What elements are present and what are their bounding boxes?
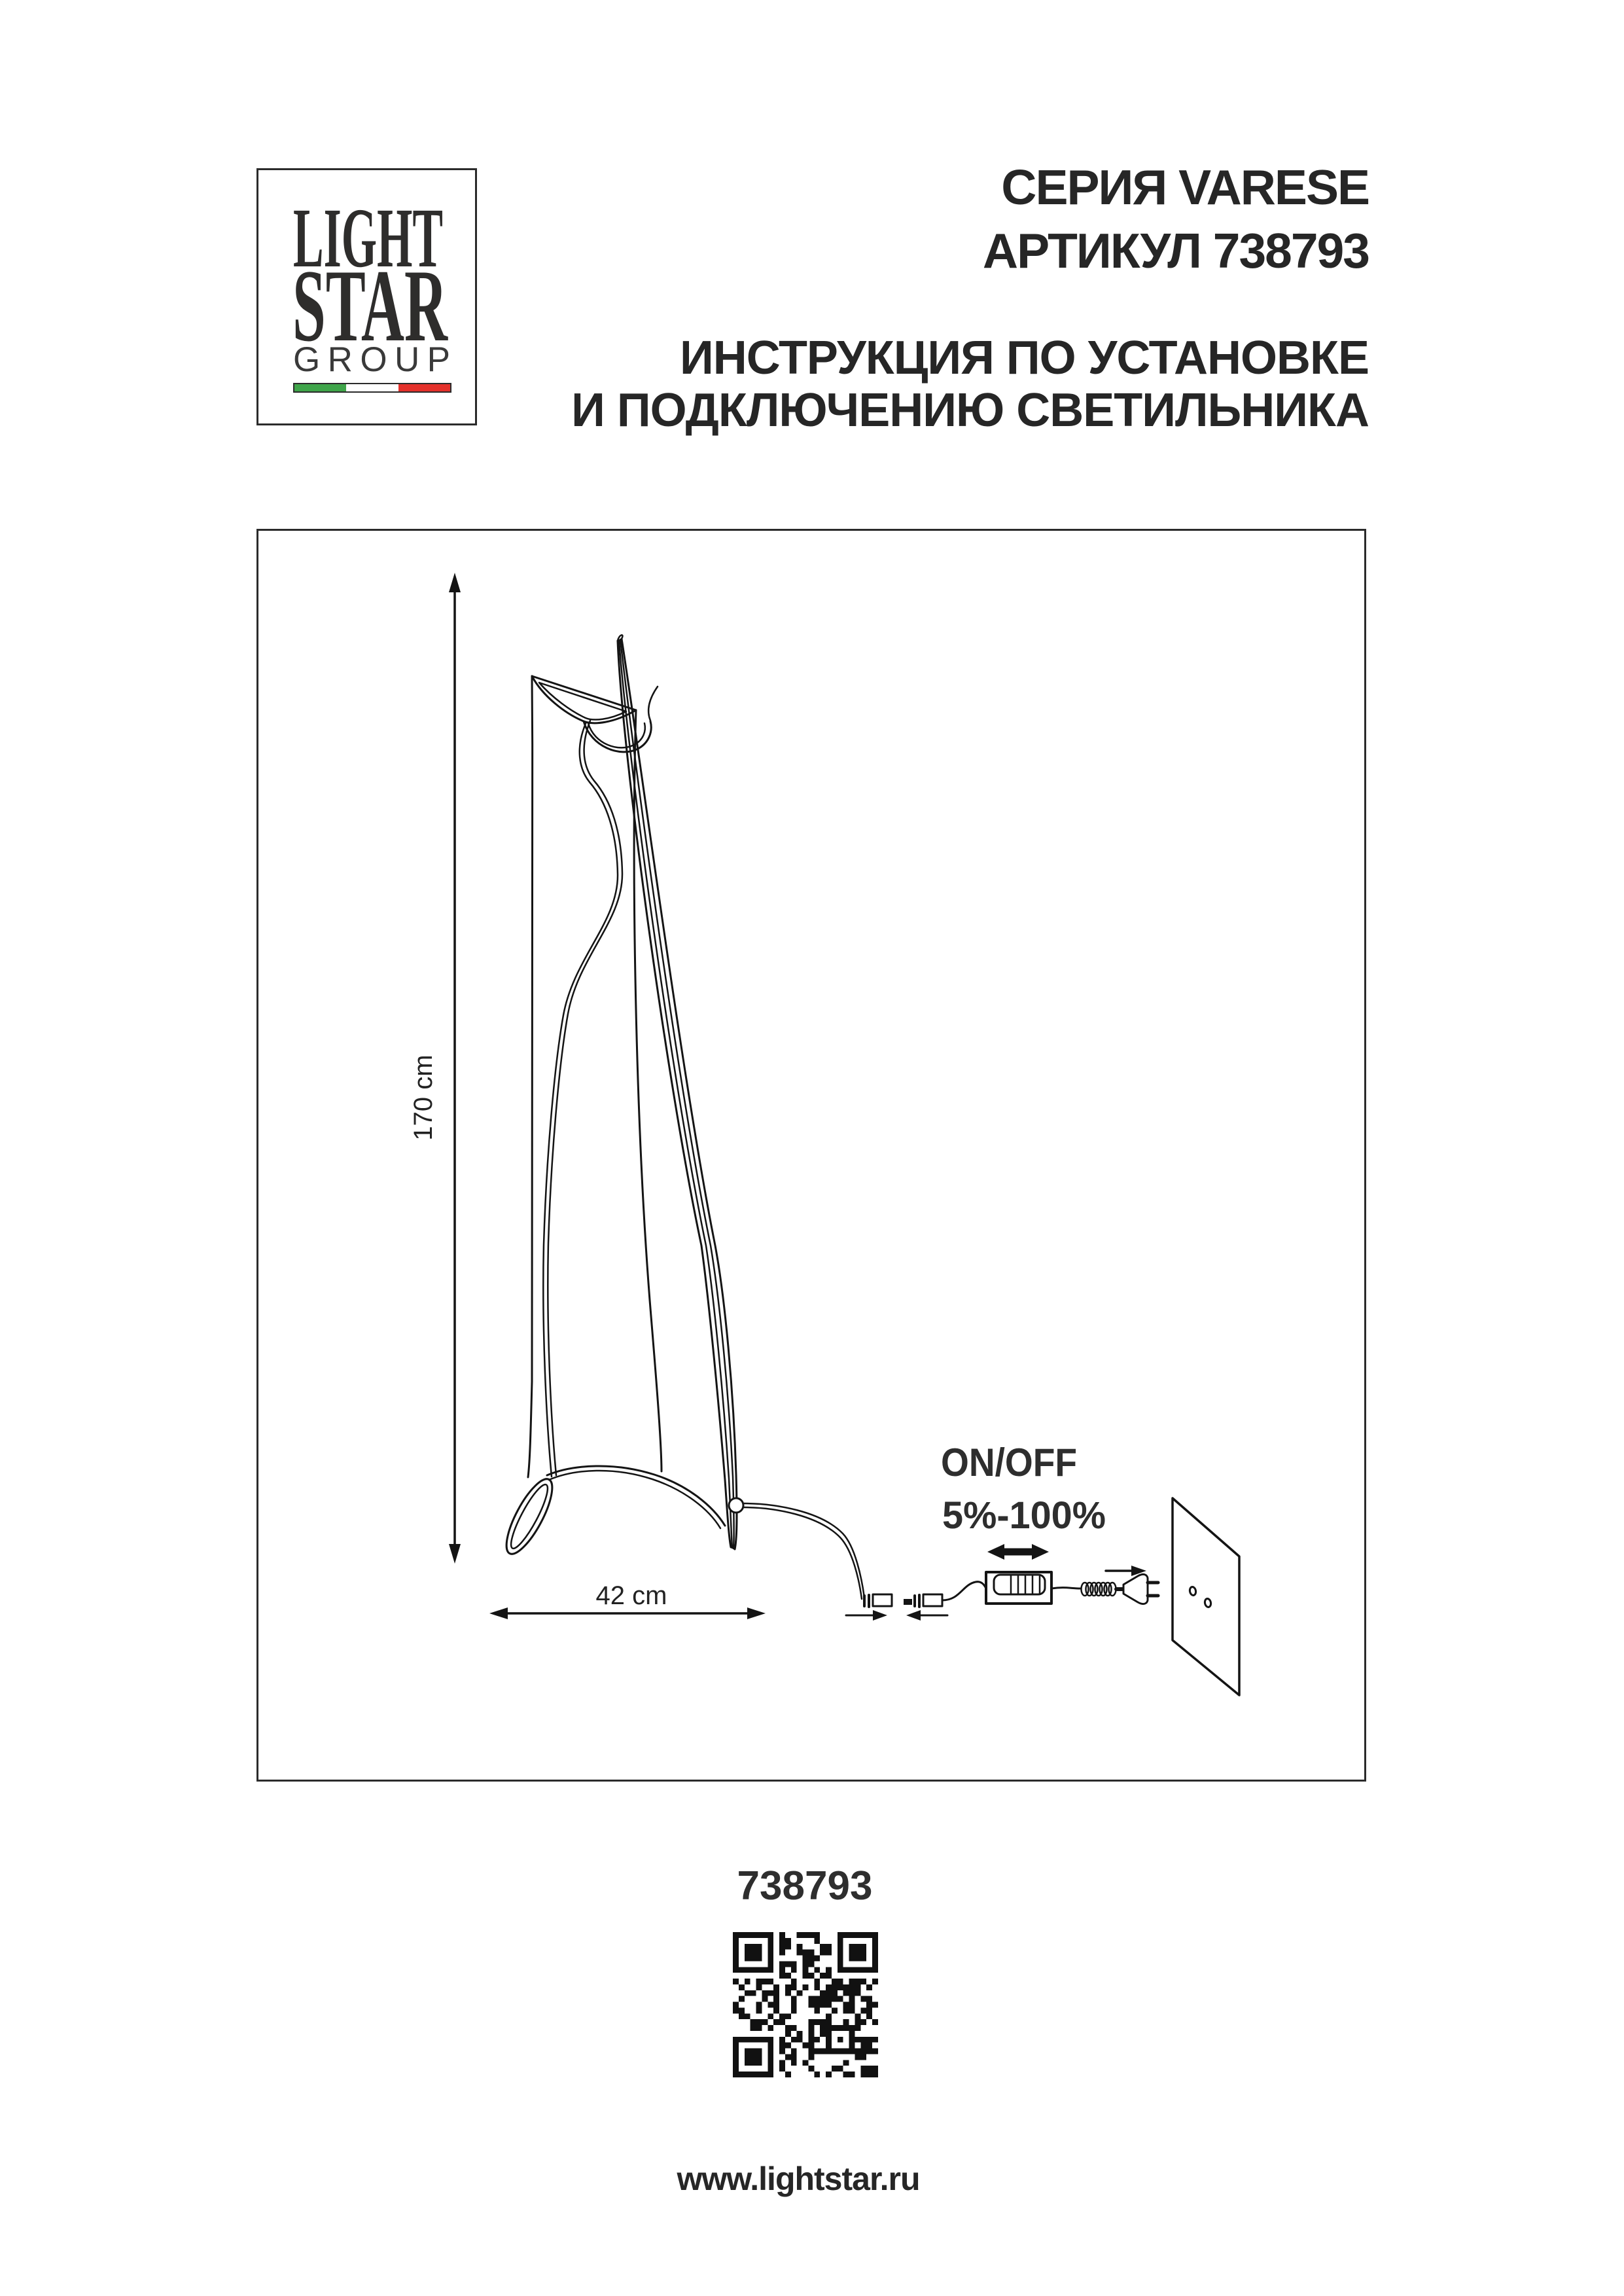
dimmer-switch: ON/OFF 5%-100% [941, 1441, 1106, 1604]
flag-red [398, 384, 451, 392]
arrow-down-head [449, 1544, 461, 1564]
flag-white [346, 384, 398, 392]
italian-flag-bar [294, 384, 451, 392]
switch-label-range: 5%-100% [942, 1494, 1106, 1537]
instruction-line1: ИНСТРУКЦИЯ ПО УСТАНОВКЕ [571, 332, 1369, 384]
right-blade-line3 [619, 640, 732, 1548]
lightstar-logo-graphic: LIGHT STAR GROUP [256, 168, 477, 425]
base-sweep-inner [549, 1471, 720, 1528]
outlet-plate [1173, 1498, 1239, 1695]
base-loop-outer [498, 1473, 560, 1560]
cable-coil [1082, 1583, 1116, 1596]
arrow-right-head [747, 1607, 766, 1619]
slider-arrow-right [1032, 1544, 1049, 1560]
width-label: 42 cm [596, 1581, 667, 1610]
slider-arrow-left [987, 1544, 1004, 1560]
cable-grommet [729, 1498, 743, 1513]
connector-female [864, 1594, 892, 1607]
connect-arrow-left-head [906, 1610, 921, 1621]
arrow-left-head [489, 1607, 508, 1619]
qr-code-graphic [733, 1929, 878, 2080]
left-blade-left-edge [528, 676, 533, 1477]
wall-outlet [1173, 1498, 1239, 1695]
cable-s-curve-b [548, 721, 622, 1475]
connect-arrow-right-head [873, 1610, 887, 1621]
power-cable-b [743, 1507, 862, 1599]
logo-word-group: GROUP [293, 340, 450, 379]
article-number: 738793 [0, 1863, 1610, 1909]
instruction-line2: И ПОДКЛЮЧЕНИЮ СВЕТИЛЬНИКА [571, 384, 1369, 437]
arrow-up-head [449, 573, 461, 592]
connector-male [904, 1594, 942, 1607]
height-dimension: 170 cm [409, 573, 461, 1564]
height-label: 170 cm [409, 1054, 438, 1140]
flag-green [294, 384, 346, 392]
cable-s-curve-a [543, 722, 618, 1477]
blade-curl [648, 687, 658, 721]
diagram-frame: 170 cm [256, 529, 1366, 1782]
floor-lamp-drawing [498, 635, 864, 1599]
series-title: СЕРИЯ VARESE [983, 156, 1369, 219]
dimmer-cable-in [942, 1582, 986, 1600]
power-cable-a [743, 1503, 864, 1598]
lamp-diagram: 170 cm [258, 531, 1364, 1780]
plug-cable [1051, 1588, 1080, 1588]
instruction-title-block: ИНСТРУКЦИЯ ПО УСТАНОВКЕ И ПОДКЛЮЧЕНИЮ СВ… [571, 332, 1369, 437]
right-blade-line2 [620, 639, 734, 1549]
series-title-block: СЕРИЯ VARESE АРТИКУЛ 738793 [983, 156, 1369, 283]
instruction-sheet: LIGHT STAR GROUP СЕРИЯ VARESE АРТИКУЛ 73… [0, 0, 1624, 2296]
power-plug [1051, 1566, 1158, 1604]
article-title: АРТИКУЛ 738793 [983, 219, 1369, 283]
qr-code [733, 1929, 878, 2080]
website-url: www.lightstar.ru [0, 2160, 1597, 2198]
lightstar-logo: LIGHT STAR GROUP [256, 168, 477, 425]
width-dimension: 42 cm [489, 1581, 766, 1619]
plug-body [1123, 1574, 1148, 1604]
switch-label-onoff: ON/OFF [941, 1441, 1077, 1484]
